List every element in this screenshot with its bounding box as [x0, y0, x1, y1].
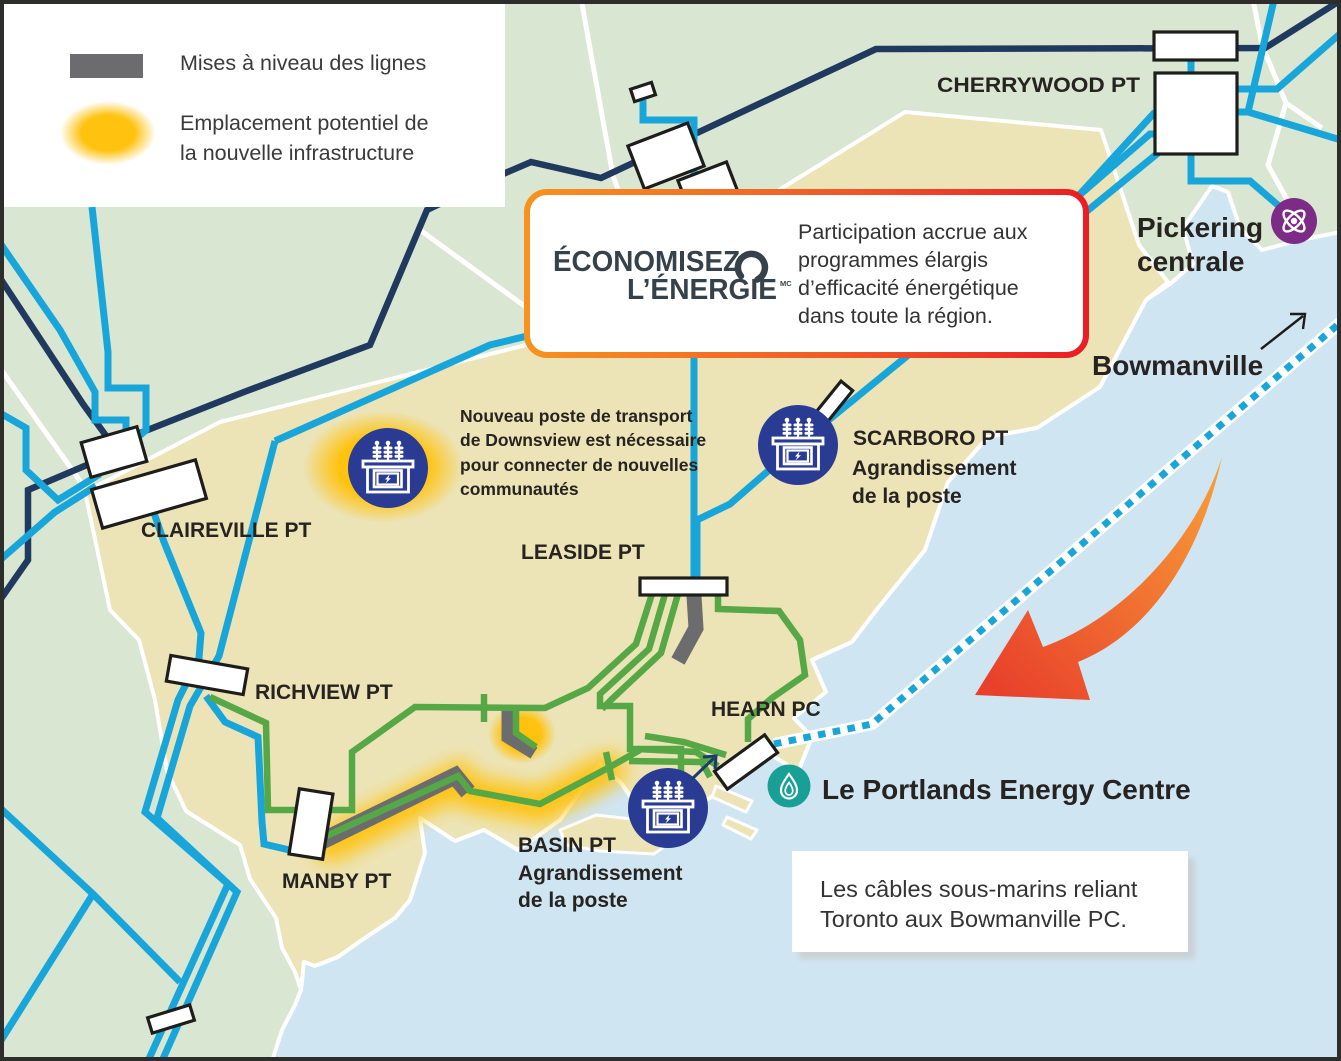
- svg-text:Toronto aux Bowmanville PC.: Toronto aux Bowmanville PC.: [820, 906, 1127, 932]
- svg-text:CHERRYWOOD PT: CHERRYWOOD PT: [937, 74, 1140, 97]
- svg-text:Le Portlands Energy Centre: Le Portlands Energy Centre: [822, 774, 1191, 805]
- svg-text:dans toute la région.: dans toute la région.: [798, 304, 993, 328]
- svg-text:la nouvelle infrastructure: la nouvelle infrastructure: [180, 141, 414, 165]
- svg-text:pour connecter de nouvelles: pour connecter de nouvelles: [460, 455, 699, 475]
- svg-text:MANBY PT: MANBY PT: [282, 870, 391, 893]
- svg-text:centrale: centrale: [1137, 246, 1244, 277]
- svg-text:de la poste: de la poste: [852, 485, 962, 508]
- svg-text:Participation accrue aux: Participation accrue aux: [798, 220, 1028, 244]
- svg-text:Agrandissement: Agrandissement: [518, 862, 683, 885]
- svg-text:SCARBORO PT: SCARBORO PT: [853, 427, 1008, 450]
- svg-text:Pickering: Pickering: [1137, 212, 1263, 243]
- svg-text:Bowmanville: Bowmanville: [1092, 350, 1263, 381]
- svg-text:Les câbles sous-marins reliant: Les câbles sous-marins reliant: [820, 876, 1138, 902]
- svg-text:LEASIDE PT: LEASIDE PT: [521, 541, 645, 564]
- svg-text:BASIN PT: BASIN PT: [518, 834, 616, 857]
- svg-text:communautés: communautés: [460, 479, 579, 499]
- svg-text:HEARN PC: HEARN PC: [711, 698, 821, 721]
- svg-text:Nouveau poste de transport: Nouveau poste de transport: [460, 406, 693, 426]
- svg-text:programmes élargis: programmes élargis: [798, 248, 988, 272]
- svg-text:de Downsview est nécessaire: de Downsview est nécessaire: [460, 430, 706, 450]
- svg-text:Emplacement potentiel de: Emplacement potentiel de: [180, 111, 429, 135]
- svg-text:CLAIREVILLE PT: CLAIREVILLE PT: [141, 519, 312, 542]
- svg-text:L’ÉNERGIE: L’ÉNERGIE: [627, 272, 777, 306]
- svg-text:RICHVIEW PT: RICHVIEW PT: [255, 681, 393, 704]
- svg-text:Mises à niveau des lignes: Mises à niveau des lignes: [180, 51, 426, 75]
- svg-text:MC: MC: [780, 279, 792, 288]
- svg-text:d’efficacité énergétique: d’efficacité énergétique: [798, 276, 1019, 300]
- svg-text:Agrandissement: Agrandissement: [852, 457, 1017, 480]
- svg-text:de la poste: de la poste: [518, 889, 628, 912]
- svg-text:ÉCONOMISEZ: ÉCONOMISEZ: [553, 244, 740, 278]
